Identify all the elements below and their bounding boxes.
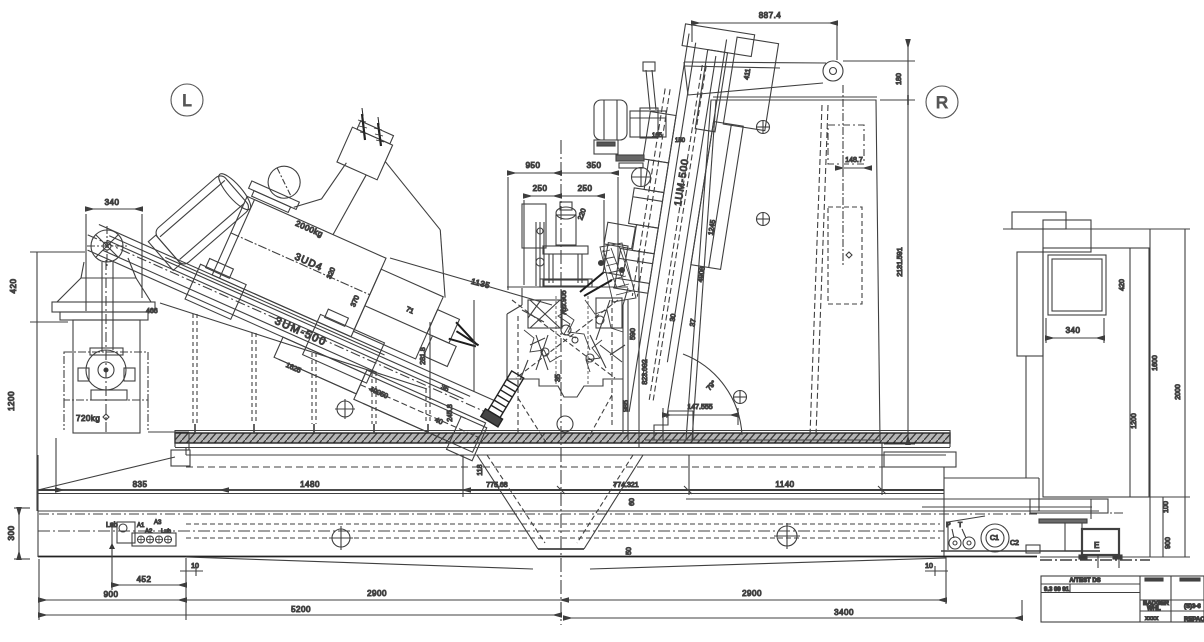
svg-text:180: 180 [896, 73, 903, 85]
svg-text:T: T [958, 522, 963, 529]
svg-text:590: 590 [630, 328, 637, 340]
svg-text:245.8: 245.8 [447, 404, 454, 422]
svg-text:L: L [182, 91, 191, 110]
svg-text:2000: 2000 [1175, 384, 1182, 400]
svg-text:720kg: 720kg [76, 414, 100, 423]
svg-text:Lub: Lub [161, 529, 172, 535]
svg-text:250: 250 [578, 184, 593, 193]
svg-text:C1: C1 [990, 535, 999, 542]
svg-text:300: 300 [7, 526, 16, 541]
svg-text:950: 950 [526, 161, 541, 170]
svg-text:100: 100 [1163, 501, 1170, 513]
svg-text:1140: 1140 [775, 480, 794, 489]
svg-text:452: 452 [137, 575, 152, 584]
svg-text:774.321: 774.321 [613, 482, 638, 489]
svg-text:250: 250 [533, 184, 548, 193]
svg-text:2900: 2900 [742, 589, 762, 598]
svg-text:WHL: WHL [1147, 606, 1161, 612]
svg-text:P: P [946, 522, 951, 529]
svg-text:835: 835 [133, 480, 148, 489]
svg-text:1200: 1200 [7, 391, 16, 411]
svg-text:775.68: 775.68 [486, 482, 508, 489]
svg-text:1600: 1600 [1152, 355, 1159, 371]
svg-text:281.8: 281.8 [420, 347, 427, 365]
svg-text:3400: 3400 [834, 608, 854, 617]
svg-text:887.4: 887.4 [759, 11, 782, 20]
svg-text:A1: A1 [137, 523, 145, 529]
svg-text:REPACE: REPACE [1184, 617, 1204, 623]
svg-text:340: 340 [1066, 326, 1081, 335]
svg-text:30: 30 [669, 313, 677, 322]
svg-text:35: 35 [555, 374, 562, 382]
svg-text:350: 350 [587, 161, 602, 170]
svg-text:420: 420 [9, 279, 18, 294]
svg-text:1480: 1480 [300, 480, 320, 489]
svg-text:2131.591: 2131.591 [897, 247, 904, 276]
svg-text:E: E [1094, 541, 1099, 550]
svg-text:900: 900 [104, 590, 119, 599]
svg-text:C2: C2 [1010, 540, 1019, 547]
svg-text:147.555: 147.555 [687, 404, 712, 411]
svg-text:5200: 5200 [291, 605, 311, 614]
svg-text:9.3 09 91: 9.3 09 91 [1044, 587, 1070, 593]
svg-text:50: 50 [626, 547, 633, 555]
svg-text:10: 10 [191, 563, 199, 570]
svg-text:900: 900 [1165, 537, 1172, 549]
svg-text:37: 37 [689, 318, 697, 327]
svg-text:Lub: Lub [106, 522, 118, 529]
svg-text:165: 165 [652, 133, 663, 139]
svg-text:A/TEST DS: A/TEST DS [1069, 578, 1100, 584]
svg-text:118: 118 [477, 464, 484, 475]
svg-text:420: 420 [1119, 279, 1126, 291]
svg-text:60: 60 [629, 498, 636, 506]
svg-text:R: R [936, 93, 948, 112]
svg-text:1200: 1200 [1131, 413, 1138, 429]
svg-text:340: 340 [105, 198, 120, 207]
svg-text:148.7: 148.7 [845, 157, 863, 164]
svg-text:150: 150 [675, 138, 686, 144]
svg-text:xxxx: xxxx [1145, 616, 1159, 622]
svg-text:A3: A3 [154, 520, 162, 526]
svg-text:2900: 2900 [367, 589, 387, 598]
svg-text:A2: A2 [145, 529, 153, 535]
svg-text:(S)3-6: (S)3-6 [1184, 604, 1201, 610]
svg-text:10: 10 [925, 563, 933, 570]
